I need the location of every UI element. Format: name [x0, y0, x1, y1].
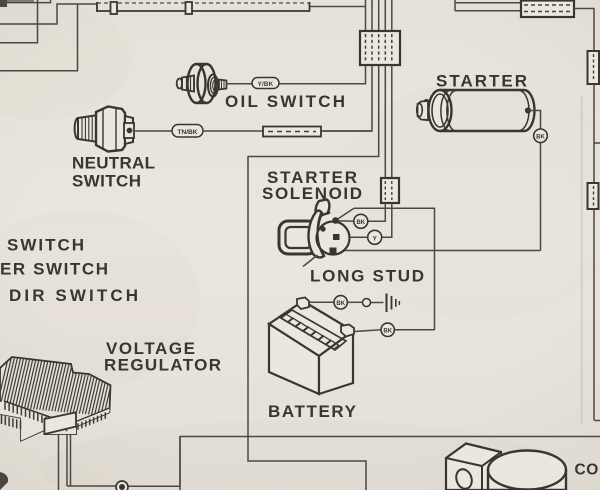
svg-text:BK: BK	[356, 220, 365, 226]
svg-text:OIL SWITCH: OIL SWITCH	[225, 92, 345, 111]
svg-text:CO: CO	[575, 462, 599, 479]
svg-text:BK: BK	[383, 328, 392, 334]
svg-text:Y/BK: Y/BK	[258, 81, 274, 88]
svg-text:Y: Y	[373, 235, 378, 242]
svg-text:SOLENOID: SOLENOID	[262, 184, 362, 203]
svg-text:NEUTRAL: NEUTRAL	[72, 154, 155, 173]
svg-text:REGULATOR: REGULATOR	[104, 356, 221, 375]
svg-text:TN/BK: TN/BK	[177, 129, 197, 136]
svg-text:BK: BK	[336, 301, 345, 307]
svg-text:LONG STUD: LONG STUD	[310, 267, 424, 286]
svg-text:SWITCH: SWITCH	[72, 172, 141, 191]
svg-text:ER SWITCH: ER SWITCH	[0, 260, 108, 279]
svg-text:BK: BK	[536, 134, 545, 140]
svg-text:DIR SWITCH: DIR SWITCH	[9, 286, 138, 305]
